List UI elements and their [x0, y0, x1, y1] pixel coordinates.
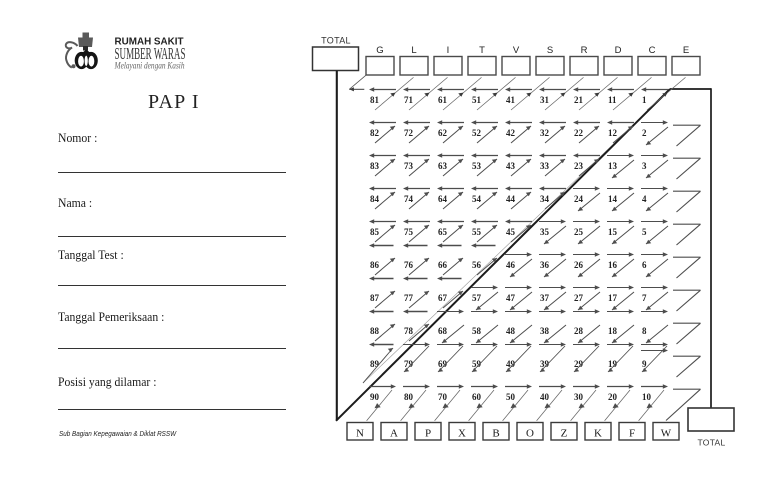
svg-text:60: 60 — [472, 392, 482, 402]
svg-text:21: 21 — [574, 95, 584, 105]
svg-text:P: P — [425, 428, 431, 440]
svg-text:83: 83 — [370, 161, 380, 171]
svg-text:81: 81 — [370, 95, 380, 105]
svg-text:75: 75 — [404, 227, 414, 237]
svg-text:K: K — [594, 428, 602, 440]
svg-text:33: 33 — [540, 161, 550, 171]
svg-text:89: 89 — [370, 359, 380, 369]
svg-text:V: V — [513, 45, 520, 56]
svg-text:62: 62 — [438, 128, 448, 138]
svg-text:80: 80 — [404, 392, 414, 402]
svg-text:17: 17 — [608, 293, 618, 303]
svg-text:42: 42 — [506, 128, 516, 138]
svg-text:35: 35 — [540, 227, 550, 237]
svg-text:41: 41 — [506, 95, 516, 105]
svg-text:X: X — [458, 428, 466, 440]
svg-text:50: 50 — [506, 392, 516, 402]
svg-text:55: 55 — [472, 227, 482, 237]
svg-text:1: 1 — [642, 95, 647, 105]
svg-text:90: 90 — [370, 392, 380, 402]
svg-text:76: 76 — [404, 260, 414, 270]
svg-text:4: 4 — [642, 194, 647, 204]
svg-text:8: 8 — [642, 326, 647, 336]
svg-text:46: 46 — [506, 260, 516, 270]
svg-text:27: 27 — [574, 293, 584, 303]
svg-text:20: 20 — [608, 392, 618, 402]
svg-text:65: 65 — [438, 227, 448, 237]
svg-text:52: 52 — [472, 128, 482, 138]
svg-text:10: 10 — [642, 392, 652, 402]
svg-text:I: I — [447, 45, 450, 56]
svg-text:16: 16 — [608, 260, 618, 270]
svg-text:11: 11 — [608, 95, 617, 105]
svg-text:18: 18 — [608, 326, 618, 336]
svg-text:88: 88 — [370, 326, 380, 336]
svg-text:56: 56 — [472, 260, 482, 270]
svg-text:T: T — [479, 45, 485, 56]
svg-text:28: 28 — [574, 326, 584, 336]
svg-text:C: C — [649, 45, 656, 56]
svg-text:66: 66 — [438, 260, 448, 270]
svg-text:A: A — [390, 428, 398, 440]
svg-text:D: D — [615, 45, 622, 56]
svg-text:64: 64 — [438, 194, 448, 204]
svg-text:58: 58 — [472, 326, 482, 336]
svg-text:82: 82 — [370, 128, 380, 138]
svg-text:68: 68 — [438, 326, 448, 336]
svg-text:26: 26 — [574, 260, 584, 270]
svg-text:74: 74 — [404, 194, 414, 204]
svg-text:73: 73 — [404, 161, 414, 171]
svg-text:N: N — [356, 428, 364, 440]
svg-text:22: 22 — [574, 128, 584, 138]
svg-text:85: 85 — [370, 227, 380, 237]
svg-text:TOTAL: TOTAL — [697, 438, 725, 448]
svg-text:77: 77 — [404, 293, 414, 303]
svg-text:87: 87 — [370, 293, 380, 303]
svg-text:7: 7 — [642, 293, 647, 303]
svg-text:G: G — [376, 45, 383, 56]
svg-text:F: F — [629, 428, 635, 440]
svg-text:36: 36 — [540, 260, 550, 270]
svg-text:86: 86 — [370, 260, 380, 270]
svg-text:78: 78 — [404, 326, 414, 336]
svg-text:43: 43 — [506, 161, 516, 171]
svg-text:25: 25 — [574, 227, 584, 237]
svg-text:2: 2 — [642, 128, 647, 138]
svg-text:23: 23 — [574, 161, 584, 171]
svg-text:54: 54 — [472, 194, 482, 204]
svg-text:72: 72 — [404, 128, 414, 138]
svg-text:24: 24 — [574, 194, 584, 204]
svg-text:R: R — [581, 45, 588, 56]
svg-text:6: 6 — [642, 260, 647, 270]
svg-text:48: 48 — [506, 326, 516, 336]
svg-text:32: 32 — [540, 128, 550, 138]
svg-text:31: 31 — [540, 95, 550, 105]
svg-text:O: O — [526, 428, 534, 440]
svg-text:61: 61 — [438, 95, 448, 105]
svg-text:37: 37 — [540, 293, 550, 303]
svg-text:15: 15 — [608, 227, 618, 237]
svg-text:47: 47 — [506, 293, 516, 303]
svg-text:W: W — [661, 428, 672, 440]
svg-text:51: 51 — [472, 95, 482, 105]
svg-text:70: 70 — [438, 392, 448, 402]
svg-text:14: 14 — [608, 194, 618, 204]
svg-text:E: E — [683, 45, 689, 56]
svg-text:L: L — [411, 45, 416, 56]
svg-text:12: 12 — [608, 128, 618, 138]
svg-text:30: 30 — [574, 392, 584, 402]
svg-text:TOTAL: TOTAL — [321, 36, 351, 46]
svg-text:Z: Z — [561, 428, 568, 440]
svg-text:44: 44 — [506, 194, 516, 204]
svg-text:5: 5 — [642, 227, 647, 237]
svg-text:57: 57 — [472, 293, 482, 303]
svg-text:34: 34 — [540, 194, 550, 204]
svg-text:S: S — [547, 45, 553, 56]
svg-text:45: 45 — [506, 227, 516, 237]
svg-text:38: 38 — [540, 326, 550, 336]
svg-text:B: B — [492, 428, 499, 440]
svg-text:40: 40 — [540, 392, 550, 402]
svg-text:63: 63 — [438, 161, 448, 171]
svg-text:71: 71 — [404, 95, 414, 105]
svg-text:3: 3 — [642, 161, 647, 171]
svg-text:67: 67 — [438, 293, 448, 303]
svg-text:84: 84 — [370, 194, 380, 204]
svg-text:53: 53 — [472, 161, 482, 171]
svg-text:13: 13 — [608, 161, 618, 171]
